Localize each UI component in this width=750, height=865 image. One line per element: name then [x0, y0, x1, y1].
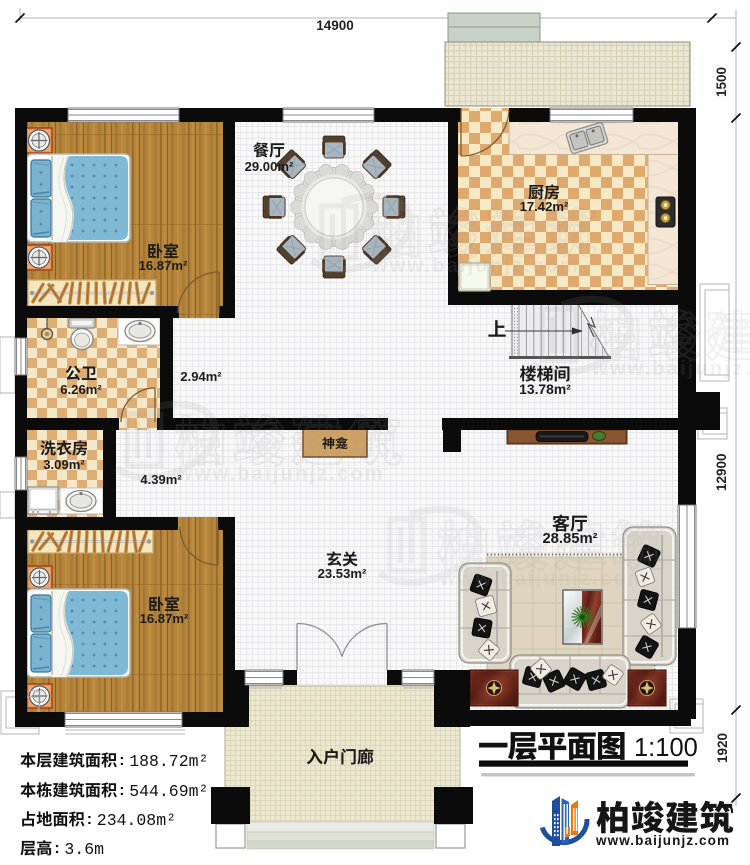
svg-text:16.87m²: 16.87m²	[139, 258, 188, 273]
svg-text::: :	[119, 752, 124, 769]
svg-text:28.85m²: 28.85m²	[542, 531, 597, 547]
svg-text::: :	[54, 840, 59, 857]
svg-text::: :	[119, 782, 124, 799]
svg-text:1:100: 1:100	[634, 734, 698, 762]
svg-text:544.69m²: 544.69m²	[129, 782, 208, 801]
svg-text:6.26m²: 6.26m²	[60, 382, 102, 397]
svg-text::: :	[87, 811, 92, 828]
svg-text:13.78m²: 13.78m²	[519, 381, 571, 397]
svg-text:4.39m²: 4.39m²	[140, 472, 182, 487]
svg-text:www.baijunjz.com: www.baijunjz.com	[595, 833, 730, 848]
svg-text:29.00m²: 29.00m²	[245, 159, 294, 174]
svg-text:188.72m²: 188.72m²	[129, 752, 208, 771]
svg-text:234.08m²: 234.08m²	[97, 811, 176, 830]
svg-text:1920: 1920	[715, 733, 730, 763]
svg-text:16.87m²: 16.87m²	[140, 611, 189, 626]
svg-text:23.53m²: 23.53m²	[318, 566, 367, 581]
svg-text:1500: 1500	[714, 67, 729, 97]
svg-text:3.6m: 3.6m	[64, 840, 104, 859]
svg-text:14900: 14900	[316, 18, 354, 33]
svg-text:3.09m²: 3.09m²	[43, 457, 85, 472]
svg-text:2.94m²: 2.94m²	[180, 369, 222, 384]
svg-text:12900: 12900	[714, 453, 729, 491]
svg-text:17.42m²: 17.42m²	[520, 199, 569, 214]
